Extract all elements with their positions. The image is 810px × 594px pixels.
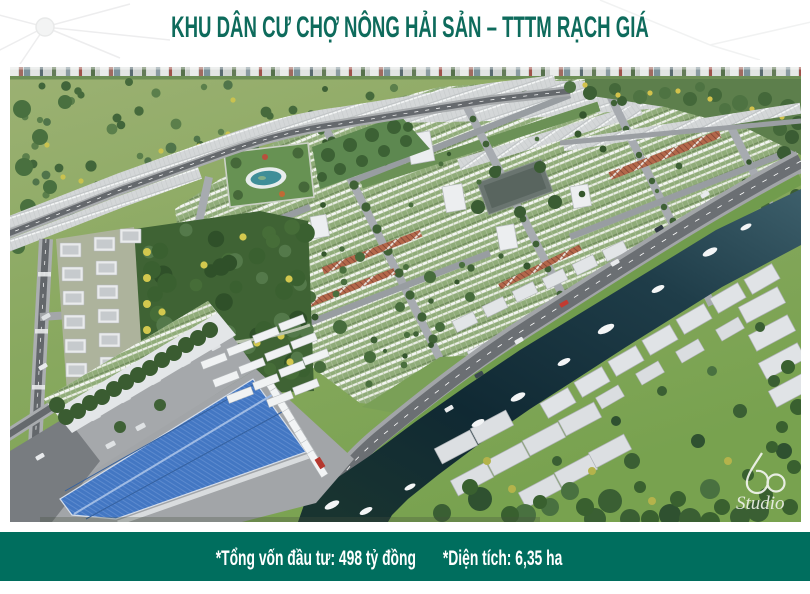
svg-text:Studio: Studio (736, 493, 785, 514)
